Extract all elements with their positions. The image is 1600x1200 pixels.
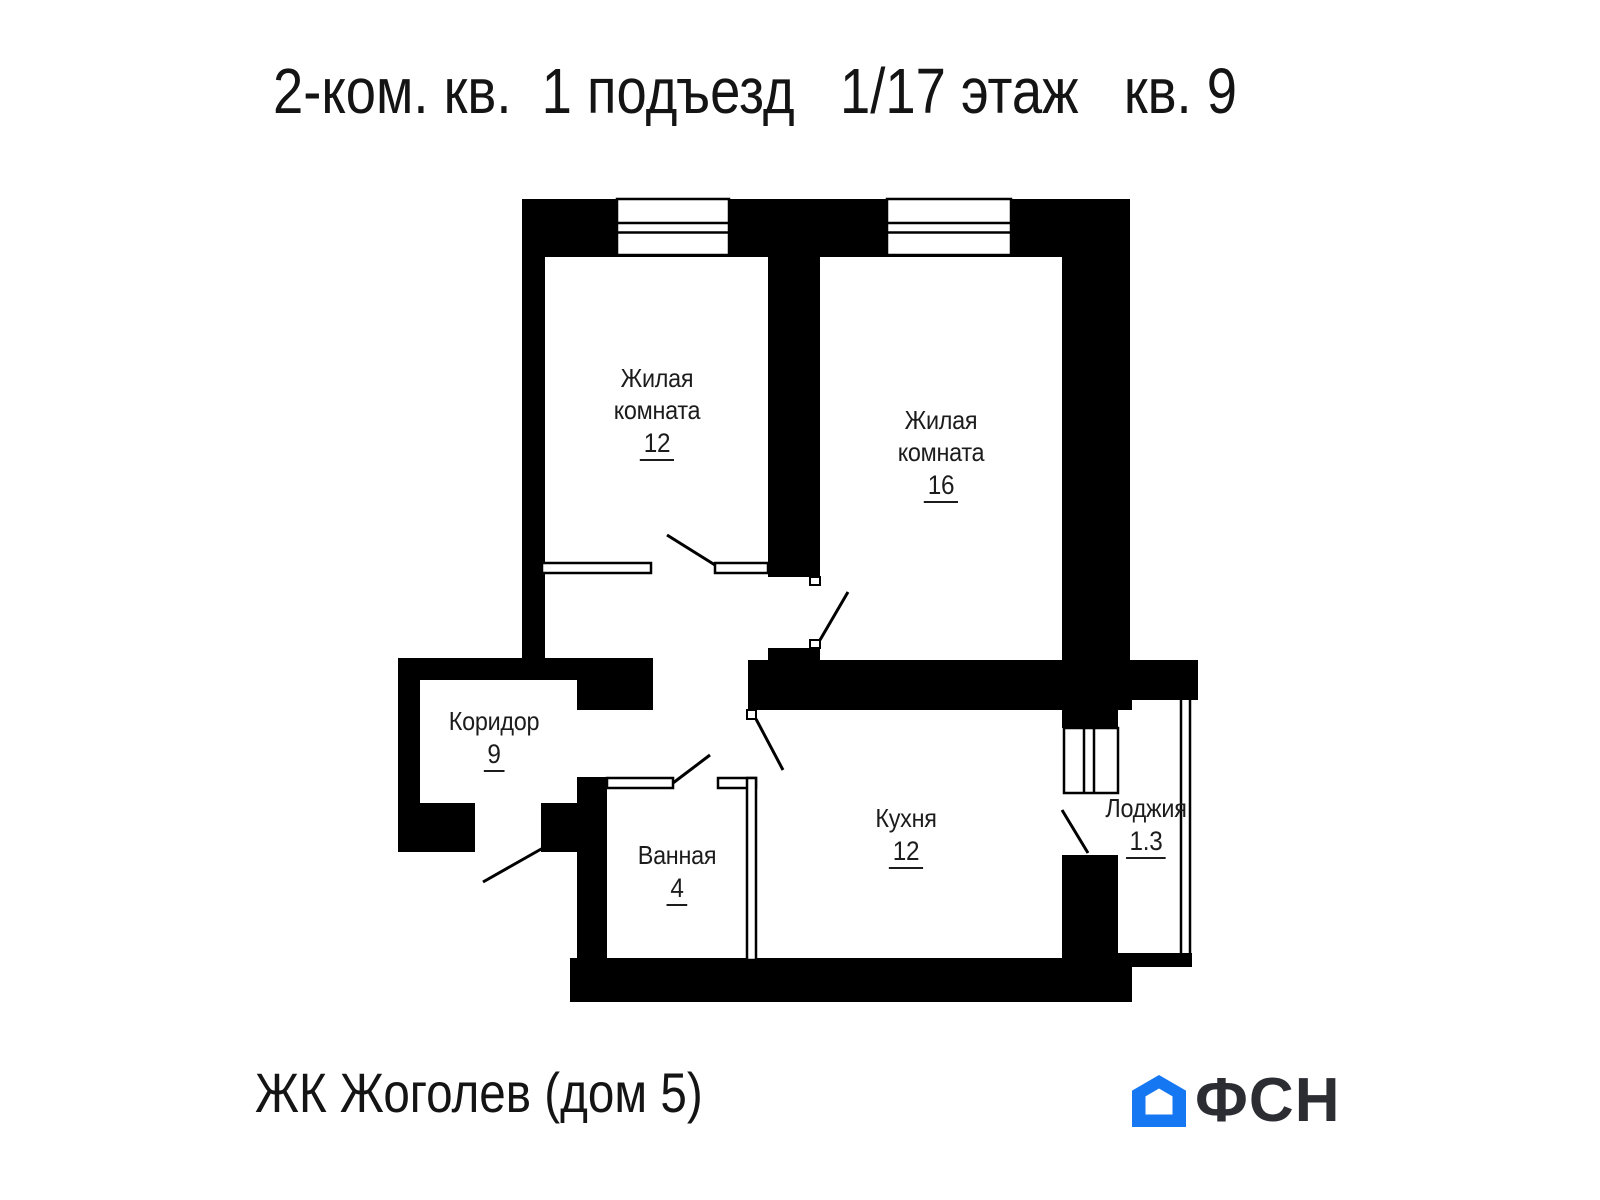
window-room12	[617, 199, 729, 255]
wall-corridor-bottom-right	[541, 803, 577, 852]
wall-left	[522, 257, 545, 658]
room-name-line: комната	[898, 436, 985, 468]
room-label-living-16: Жилая комната 16	[898, 404, 985, 503]
room-label-living-12: Жилая комната 12	[614, 362, 701, 461]
wall-middle	[768, 257, 820, 577]
room-label-corridor: Коридор 9	[449, 705, 540, 772]
room-name-line: Жилая	[898, 404, 985, 436]
walls	[398, 199, 1198, 1002]
room-area: 4	[667, 874, 687, 906]
window-room16	[887, 199, 1011, 255]
fsn-logo: ФСН	[1132, 1070, 1340, 1132]
room-name-line: Жилая	[614, 362, 701, 394]
partition-room12-right	[715, 563, 768, 573]
room-name-line: комната	[614, 394, 701, 426]
wall-corridor-bottom-left	[398, 803, 475, 852]
wall-corridor-shoulder	[577, 680, 653, 710]
wall-loggia-divider-top	[1062, 710, 1118, 728]
room-area: 12	[889, 837, 923, 869]
hinge-room16-top	[810, 577, 820, 585]
door-leaf-kitchen	[756, 719, 783, 770]
room-area: 1.3	[1126, 827, 1166, 859]
partition-bathroom-right	[747, 778, 756, 960]
floor-plan-drawing	[0, 0, 1600, 1200]
wall-loggia-top	[1130, 660, 1198, 700]
room-area: 9	[484, 740, 504, 772]
room-label-loggia: Лоджия 1.3	[1105, 792, 1186, 859]
floorplan-page: 2-ком. кв. 1 подъезд 1/17 этаж кв. 9	[0, 0, 1600, 1200]
wall-top	[522, 199, 1130, 257]
wall-bottom	[570, 958, 1132, 1002]
partition-room12-left	[542, 563, 651, 573]
window-kitchen-loggia	[1064, 728, 1118, 793]
door-leaf-room12	[667, 535, 715, 565]
wall-kitchen-top	[748, 660, 1132, 710]
door-leaf-entrance	[483, 848, 543, 882]
room-name-line: Ванная	[638, 839, 717, 871]
door-leaf-balcony	[1062, 810, 1088, 853]
room-area: 16	[924, 471, 958, 503]
hinge-kitchen	[747, 710, 756, 719]
wall-right	[1062, 257, 1130, 710]
door-leaf-room16	[820, 592, 848, 640]
room-label-kitchen: Кухня 12	[875, 802, 936, 869]
house-icon	[1132, 1075, 1186, 1127]
room-area: 12	[640, 429, 674, 461]
wall-loggia-divider-bottom	[1062, 855, 1118, 958]
room-label-bathroom: Ванная 4	[638, 839, 717, 906]
room-name-line: Лоджия	[1105, 792, 1186, 824]
floor-plan: Жилая комната 12 Жилая комната 16 Коридо…	[0, 0, 1600, 1200]
wall-bathroom-left	[577, 777, 607, 960]
wall-corridor-top	[398, 658, 653, 680]
wall-loggia-bottom	[1118, 953, 1192, 967]
partition-bathroom-top	[607, 778, 673, 788]
wall-room16-door-stub	[768, 648, 820, 660]
project-name: ЖК Жоголев (дом 5)	[255, 1062, 703, 1124]
room-name-line: Коридор	[449, 705, 540, 737]
logo-text: ФСН	[1195, 1070, 1340, 1132]
room-name-line: Кухня	[875, 802, 936, 834]
hinge-room16-bottom	[810, 640, 820, 648]
door-leaf-bathroom	[673, 755, 710, 783]
